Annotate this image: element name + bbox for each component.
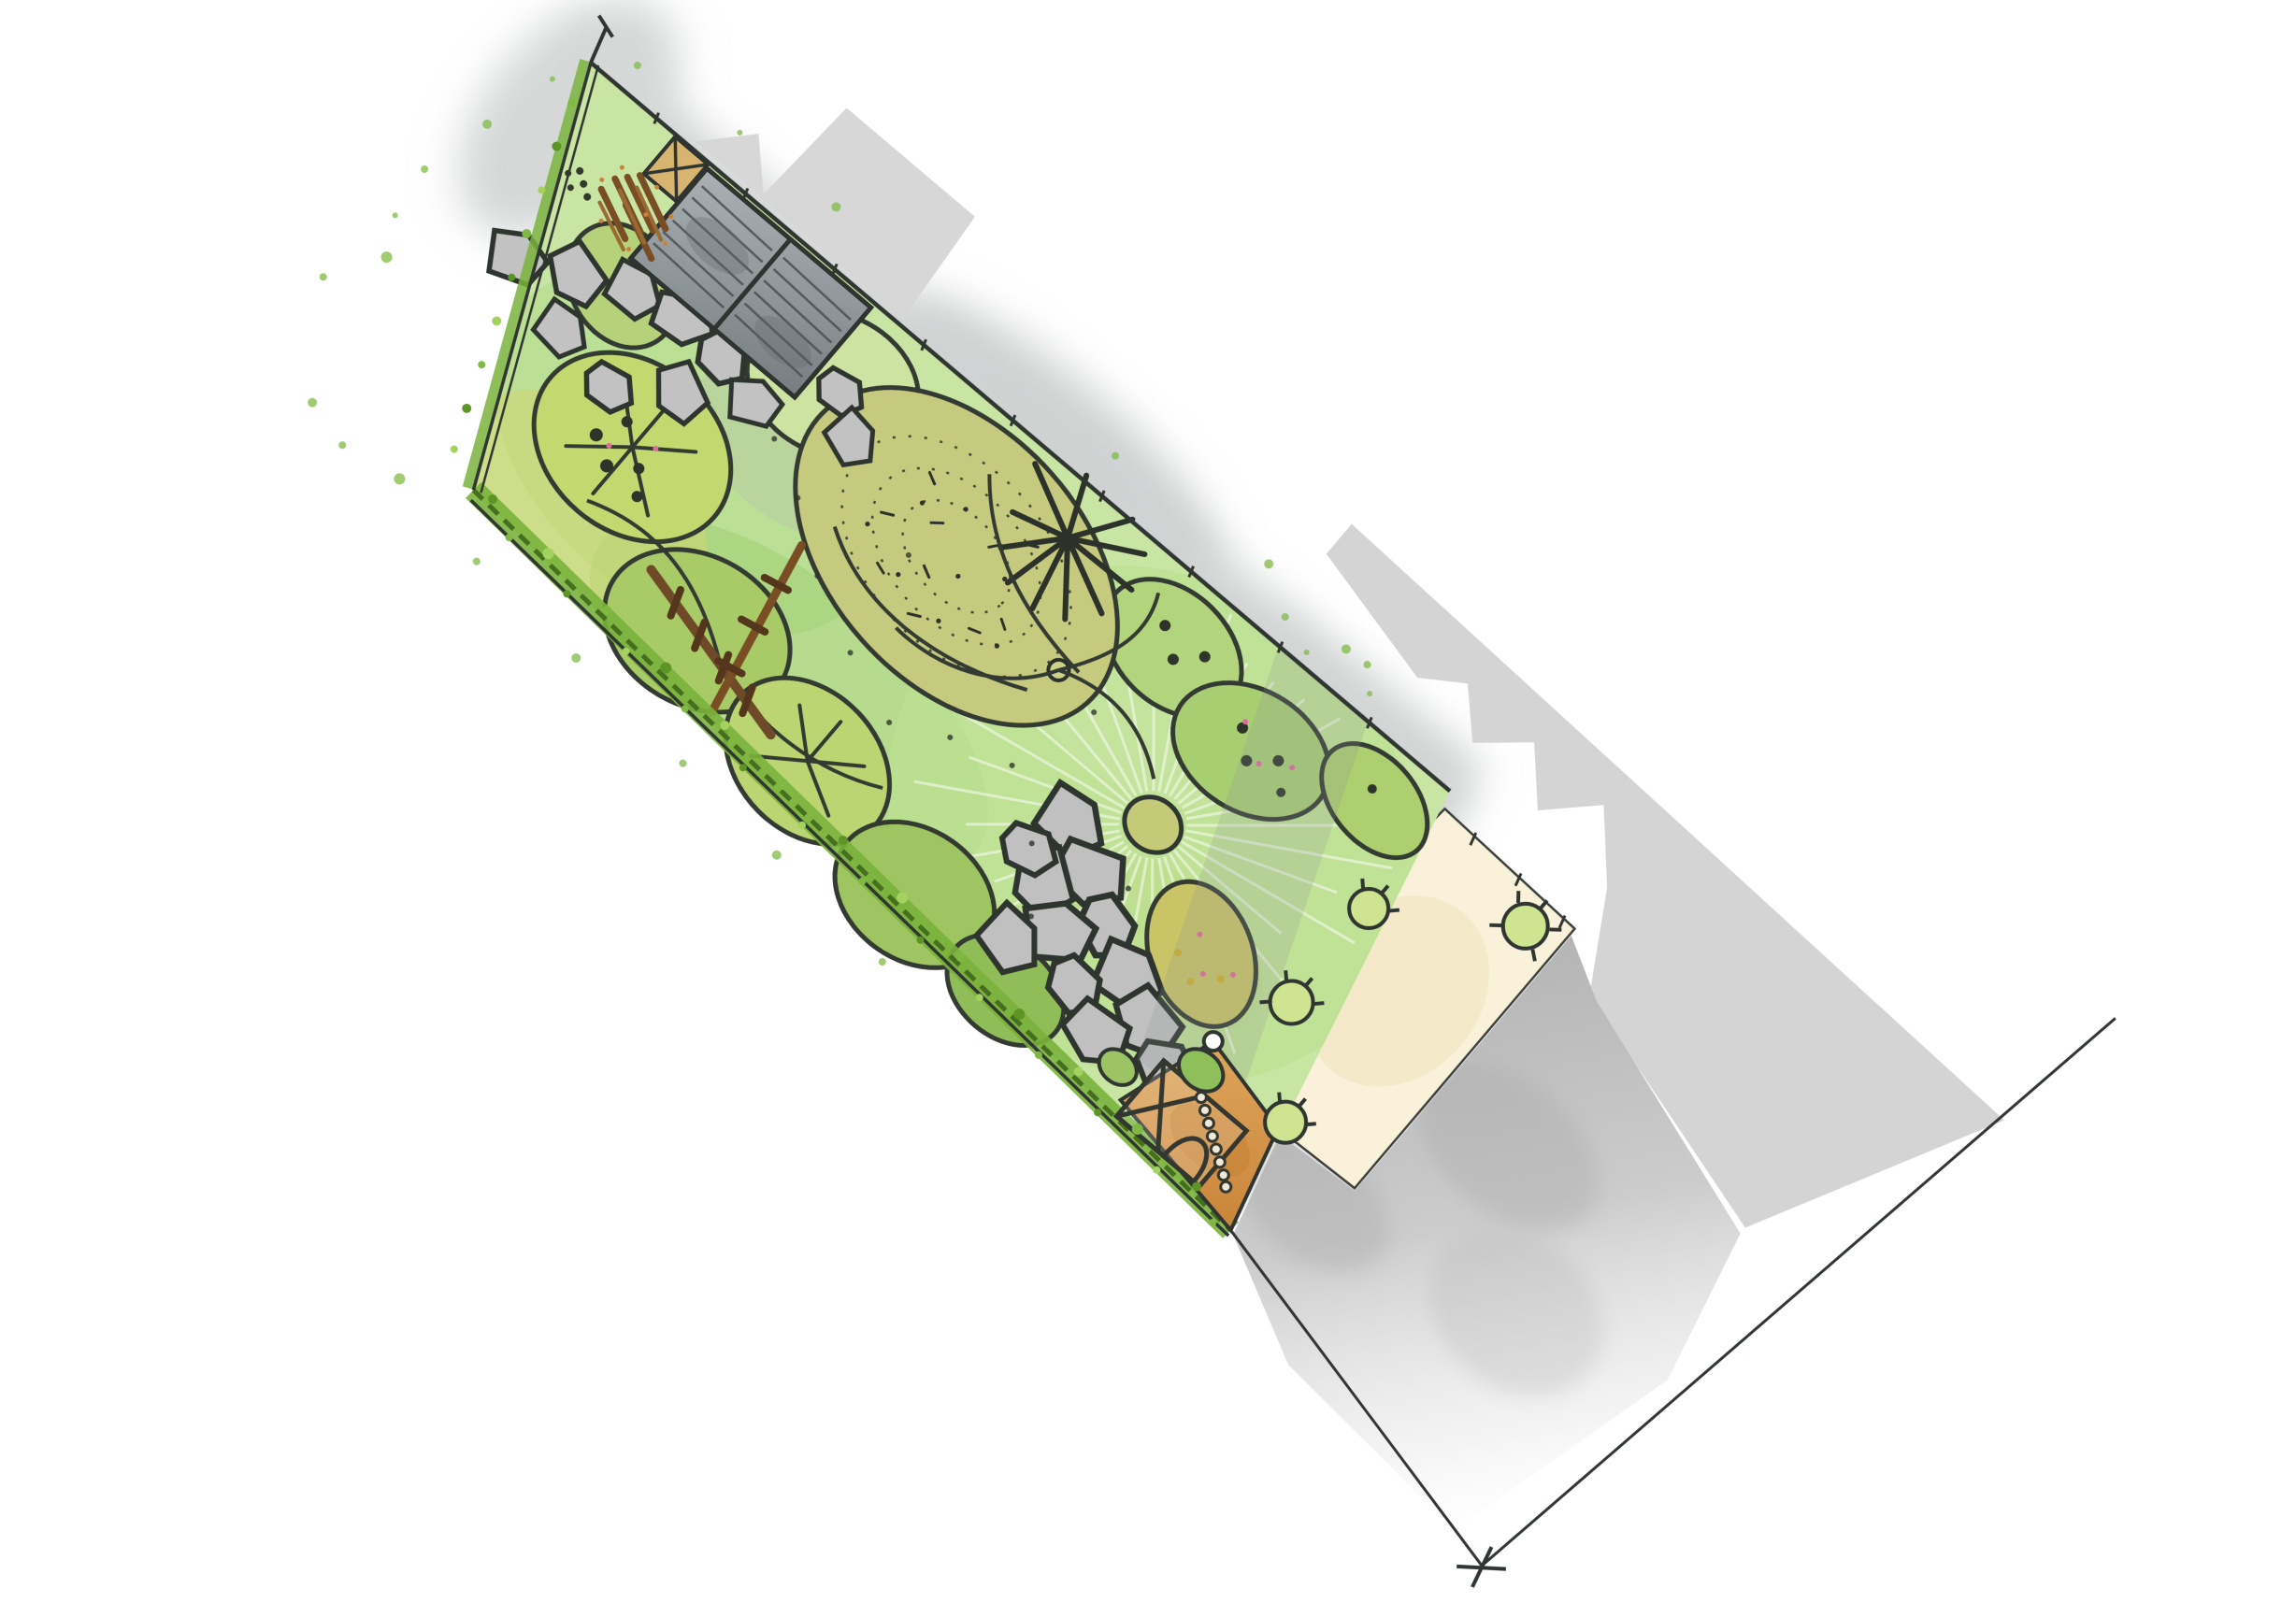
sheet	[0, 0, 2296, 1617]
garden-plan-illustration	[0, 0, 2296, 1617]
